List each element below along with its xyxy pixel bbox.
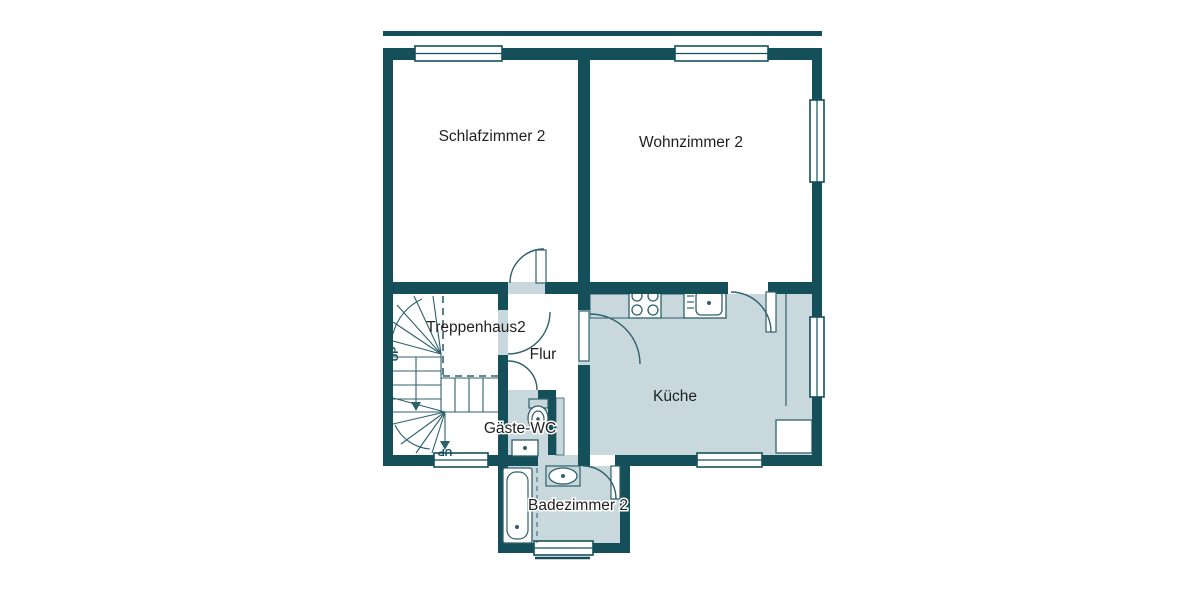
door-gaeste-wc bbox=[508, 361, 537, 390]
window-kueche-bottom bbox=[697, 453, 762, 467]
wall-kueche-top-left bbox=[590, 282, 728, 294]
room-label-badezimmer: Badezimmer 2 bbox=[528, 497, 628, 514]
bath-sink-icon bbox=[546, 466, 580, 486]
door-slot-schlafzimmer bbox=[508, 282, 545, 294]
room-label-treppenhaus: Treppenhaus2 bbox=[426, 319, 525, 336]
bath-threshold bbox=[538, 455, 583, 466]
wall-schlafzimmer-bottom bbox=[383, 282, 508, 294]
wc-sink-icon bbox=[512, 440, 538, 456]
stairs-up-label-2: UP bbox=[438, 446, 453, 458]
wall-treppenhaus-flur-lower bbox=[498, 355, 508, 455]
top-accent-band bbox=[383, 31, 822, 36]
room-label-wohnzimmer: Wohnzimmer 2 bbox=[639, 134, 743, 151]
floorplan-svg: UP UP Schlafzimmer 2 Wohnzimmer 2 Treppe… bbox=[0, 0, 1200, 600]
corridor-closet bbox=[556, 398, 564, 455]
wall-left bbox=[383, 48, 393, 466]
floorplan-page: UP UP Schlafzimmer 2 Wohnzimmer 2 Treppe… bbox=[0, 0, 1200, 600]
wall-center-divider-upper bbox=[578, 48, 590, 310]
door-schlafzimmer bbox=[510, 249, 546, 283]
window-schlafzimmer-top bbox=[415, 46, 502, 61]
window-wohnzimmer-top bbox=[675, 46, 768, 61]
window-kueche-right bbox=[810, 317, 824, 397]
room-label-kueche: Küche bbox=[653, 388, 697, 405]
room-label-flur: Flur bbox=[530, 346, 557, 363]
stairs-up-label-1: UP bbox=[389, 347, 401, 362]
wall-center-divider-lower bbox=[578, 365, 590, 466]
room-label-schlafzimmer: Schlafzimmer 2 bbox=[439, 128, 546, 145]
room-label-gaeste-wc: Gäste-WC bbox=[484, 420, 556, 437]
appliance-icon bbox=[776, 420, 812, 453]
window-wohnzimmer-right bbox=[810, 100, 824, 182]
window-badezimmer-bottom bbox=[534, 541, 593, 555]
wall-flur-top bbox=[545, 282, 578, 294]
wall-wc-top-left bbox=[498, 390, 508, 400]
wall-treppenhaus-flur-upper bbox=[498, 294, 508, 310]
